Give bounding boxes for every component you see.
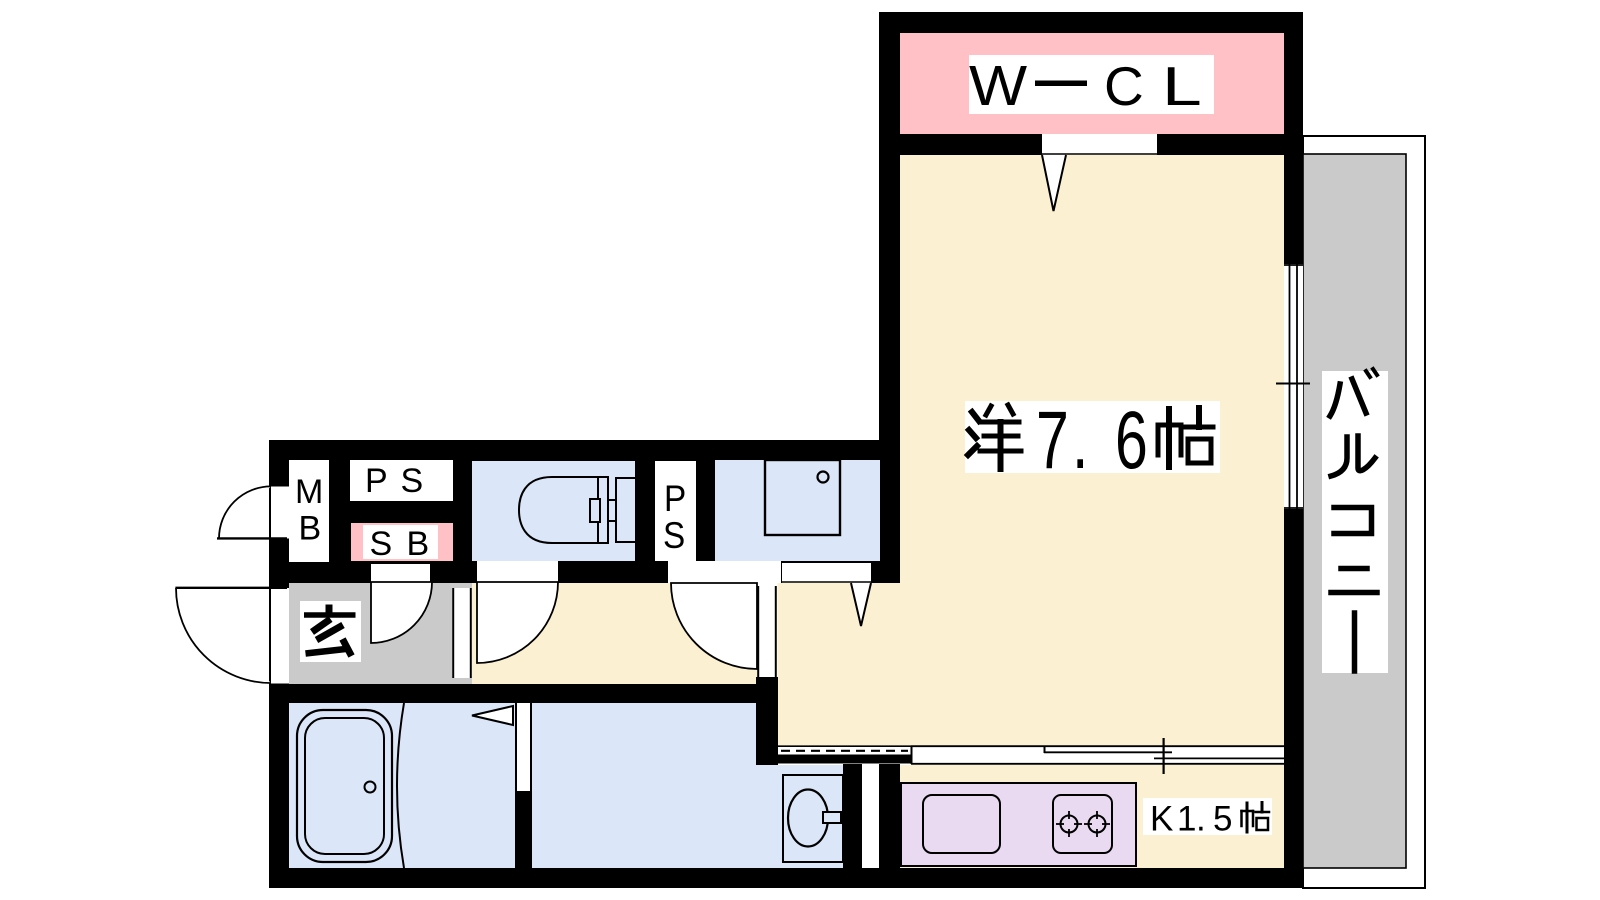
- svg-text:S: S: [370, 525, 393, 563]
- svg-text:M: M: [295, 473, 323, 511]
- svg-text:S: S: [663, 515, 685, 556]
- svg-text:W: W: [969, 53, 1027, 117]
- svg-text:C: C: [1104, 55, 1144, 117]
- svg-text:6: 6: [1115, 395, 1148, 487]
- svg-text:S: S: [401, 462, 424, 500]
- svg-text:7: 7: [1036, 395, 1069, 487]
- svg-text:P: P: [365, 462, 388, 500]
- svg-text:5: 5: [1213, 800, 1232, 839]
- svg-text:B: B: [299, 510, 322, 548]
- svg-text:P: P: [664, 478, 686, 519]
- svg-text:.: .: [1196, 800, 1206, 839]
- svg-text:.: .: [1072, 395, 1088, 487]
- svg-text:K: K: [1150, 800, 1173, 839]
- svg-text:L: L: [1162, 55, 1202, 117]
- svg-text:1: 1: [1177, 800, 1196, 839]
- svg-text:B: B: [407, 525, 430, 563]
